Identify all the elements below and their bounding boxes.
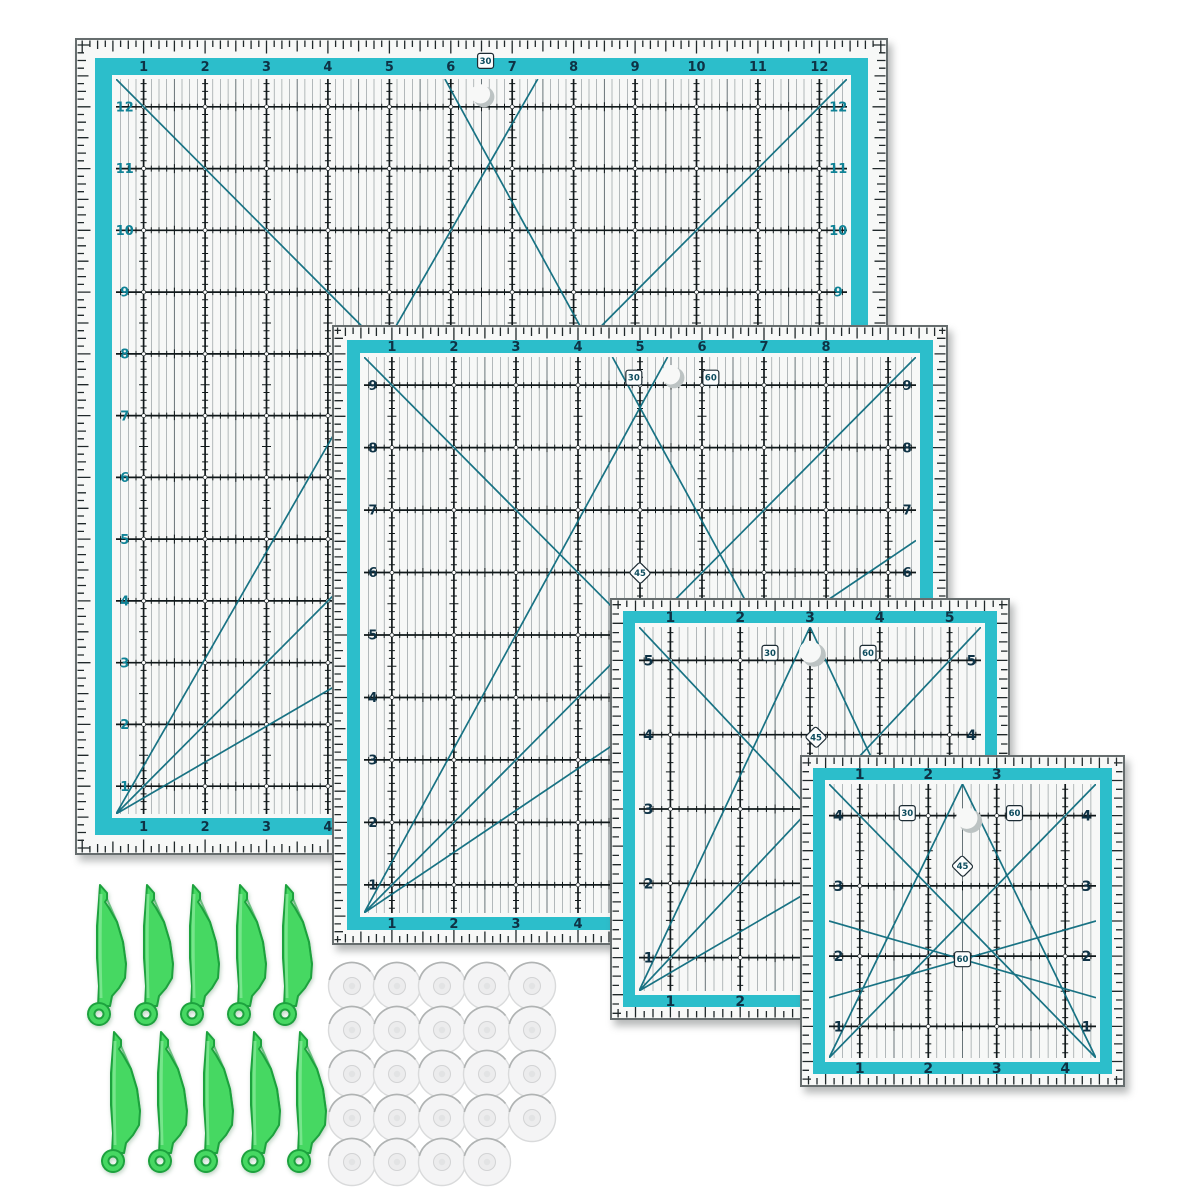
green-sewing-clip <box>192 1029 236 1177</box>
bottom-scale-number: 4 <box>573 917 582 932</box>
left-scale-number: 5 <box>120 533 129 548</box>
left-scale-number: 1 <box>644 951 654 967</box>
clear-bobbin-disc <box>507 1005 557 1055</box>
left-scale-number: 4 <box>120 595 129 610</box>
green-sewing-clip <box>178 882 222 1030</box>
svg-text:45: 45 <box>957 862 969 872</box>
svg-text:30: 30 <box>480 57 492 67</box>
left-scale-number: 12 <box>116 100 134 115</box>
clear-bobbin-disc <box>372 961 422 1011</box>
left-scale-number: 1 <box>368 879 377 894</box>
clear-bobbin-disc <box>417 961 467 1011</box>
clear-bobbin-disc <box>327 961 377 1011</box>
left-scale-number: 9 <box>120 286 129 301</box>
clear-bobbin-disc <box>417 1049 467 1099</box>
green-sewing-clip <box>285 1029 329 1177</box>
quilting-ruler-4-inch-svg: 30604560123123443214321 <box>800 755 1125 1087</box>
bottom-scale-number: 1 <box>855 1061 865 1077</box>
top-scale-number: 6 <box>697 340 706 355</box>
right-scale-number: 12 <box>829 100 847 115</box>
left-scale-number: 3 <box>368 754 377 769</box>
clear-bobbin-disc <box>462 1137 512 1187</box>
left-scale-number: 6 <box>368 566 377 581</box>
left-scale-number: 2 <box>120 718 129 733</box>
left-scale-number: 6 <box>120 471 129 486</box>
svg-text:60: 60 <box>1009 809 1021 819</box>
clear-bobbin-disc <box>327 1005 377 1055</box>
left-scale-number: 1 <box>834 1019 844 1035</box>
svg-text:45: 45 <box>810 733 822 743</box>
bottom-scale-number: 1 <box>139 820 148 835</box>
clear-bobbin-disc <box>372 1005 422 1055</box>
left-scale-number: 7 <box>368 504 377 519</box>
angle-badge-60: 60 <box>955 952 971 967</box>
left-scale-number: 4 <box>368 691 377 706</box>
top-scale-number: 9 <box>631 60 640 75</box>
bottom-scale-number: 2 <box>201 820 210 835</box>
bottom-scale-number: 2 <box>923 1061 933 1077</box>
angle-badge-30: 30 <box>762 645 778 660</box>
clear-bobbin-disc <box>507 1049 557 1099</box>
left-scale-number: 1 <box>120 780 129 795</box>
top-scale-number: 4 <box>323 60 332 75</box>
svg-text:30: 30 <box>764 649 776 659</box>
left-scale-number: 2 <box>834 949 844 965</box>
top-scale-number: 7 <box>508 60 517 75</box>
top-scale-number: 5 <box>385 60 394 75</box>
top-scale-number: 1 <box>139 60 148 75</box>
top-scale-number: 3 <box>805 610 815 626</box>
bottom-scale-number: 3 <box>992 1061 1002 1077</box>
angle-badge-60: 60 <box>860 645 876 660</box>
top-scale-number: 3 <box>511 340 520 355</box>
clear-bobbin-disc <box>417 1137 467 1187</box>
green-sewing-clip <box>99 1029 143 1177</box>
left-scale-number: 8 <box>368 441 377 456</box>
clear-bobbin-disc <box>507 1093 557 1143</box>
top-scale-number: 5 <box>635 340 644 355</box>
top-scale-number: 5 <box>945 610 955 626</box>
bottom-scale-number: 2 <box>449 917 458 932</box>
top-scale-number: 1 <box>855 767 865 783</box>
left-scale-number: 11 <box>116 162 134 177</box>
green-sewing-clip <box>225 882 269 1030</box>
right-scale-number: 5 <box>967 653 977 669</box>
left-scale-number: 7 <box>120 409 129 424</box>
left-scale-number: 10 <box>116 224 134 239</box>
left-scale-number: 9 <box>368 379 377 394</box>
left-scale-number: 2 <box>368 816 377 831</box>
svg-text:30: 30 <box>628 374 640 384</box>
top-scale-number: 3 <box>992 767 1002 783</box>
clear-bobbin-disc <box>462 961 512 1011</box>
left-scale-number: 5 <box>644 653 654 669</box>
left-scale-number: 4 <box>834 809 844 825</box>
top-scale-number: 8 <box>569 60 578 75</box>
green-sewing-clip <box>239 1029 283 1177</box>
right-scale-number: 10 <box>829 224 847 239</box>
svg-text:60: 60 <box>957 955 969 965</box>
top-scale-number: 1 <box>666 610 676 626</box>
left-scale-number: 3 <box>834 879 844 895</box>
green-sewing-clip <box>132 882 176 1030</box>
left-scale-number: 3 <box>120 656 129 671</box>
top-scale-number: 2 <box>449 340 458 355</box>
top-scale-number: 3 <box>262 60 271 75</box>
green-sewing-clip <box>271 882 315 1030</box>
svg-text:60: 60 <box>862 649 874 659</box>
right-scale-number: 8 <box>903 441 912 456</box>
clear-bobbin-disc <box>462 1005 512 1055</box>
svg-text:30: 30 <box>901 809 913 819</box>
right-scale-number: 6 <box>903 566 912 581</box>
left-scale-number: 4 <box>644 728 654 744</box>
top-scale-number: 4 <box>573 340 582 355</box>
svg-text:45: 45 <box>634 569 646 579</box>
angle-badge-30: 30 <box>478 53 494 68</box>
bottom-scale-number: 3 <box>262 820 271 835</box>
clear-bobbin-disc <box>417 1005 467 1055</box>
top-scale-number: 10 <box>688 60 706 75</box>
bottom-scale-number: 3 <box>511 917 520 932</box>
green-sewing-clip <box>85 882 129 1030</box>
quilting-ruler-4-inch: 30604560123123443214321 <box>800 755 1125 1087</box>
right-scale-number: 7 <box>903 504 912 519</box>
clear-bobbin-disc <box>462 1049 512 1099</box>
right-scale-number: 4 <box>1082 809 1092 825</box>
top-scale-number: 8 <box>822 340 831 355</box>
bottom-scale-number: 1 <box>387 917 396 932</box>
angle-badge-30: 30 <box>626 370 642 385</box>
right-scale-number: 9 <box>903 379 912 394</box>
right-scale-number: 1 <box>1082 1019 1092 1035</box>
top-scale-number: 4 <box>875 610 885 626</box>
top-scale-number: 2 <box>735 610 745 626</box>
bottom-scale-number: 1 <box>666 994 676 1010</box>
right-scale-number: 2 <box>1082 949 1092 965</box>
top-scale-number: 11 <box>749 60 767 75</box>
left-scale-number: 8 <box>120 347 129 362</box>
right-scale-number: 3 <box>1082 879 1092 895</box>
clear-bobbin-disc <box>507 961 557 1011</box>
right-scale-number: 9 <box>834 286 843 301</box>
bottom-scale-number: 4 <box>1060 1061 1070 1077</box>
top-scale-number: 12 <box>810 60 828 75</box>
clear-bobbin-disc <box>327 1093 377 1143</box>
top-scale-number: 7 <box>760 340 769 355</box>
right-scale-number: 11 <box>829 162 847 177</box>
clear-bobbin-disc <box>372 1093 422 1143</box>
clear-bobbin-disc <box>462 1093 512 1143</box>
top-scale-number: 2 <box>201 60 210 75</box>
clear-bobbin-disc <box>372 1137 422 1187</box>
left-scale-number: 2 <box>644 876 654 892</box>
angle-badge-60: 60 <box>703 370 719 385</box>
quilting-ruler-set-photo: 3012345678910111212345678910111212111098… <box>0 0 1200 1200</box>
left-scale-number: 5 <box>368 629 377 644</box>
top-scale-number: 2 <box>923 767 933 783</box>
right-scale-number: 4 <box>967 728 977 744</box>
top-scale-number: 1 <box>387 340 396 355</box>
svg-text:60: 60 <box>705 374 717 384</box>
angle-badge-60: 60 <box>1007 806 1023 821</box>
bottom-scale-number: 2 <box>735 994 745 1010</box>
clear-bobbin-disc <box>417 1093 467 1143</box>
top-scale-number: 6 <box>446 60 455 75</box>
clear-bobbin-disc <box>327 1137 377 1187</box>
left-scale-number: 3 <box>644 802 654 818</box>
green-sewing-clip <box>146 1029 190 1177</box>
clear-bobbin-disc <box>372 1049 422 1099</box>
angle-badge-30: 30 <box>899 806 915 821</box>
clear-bobbin-disc <box>327 1049 377 1099</box>
